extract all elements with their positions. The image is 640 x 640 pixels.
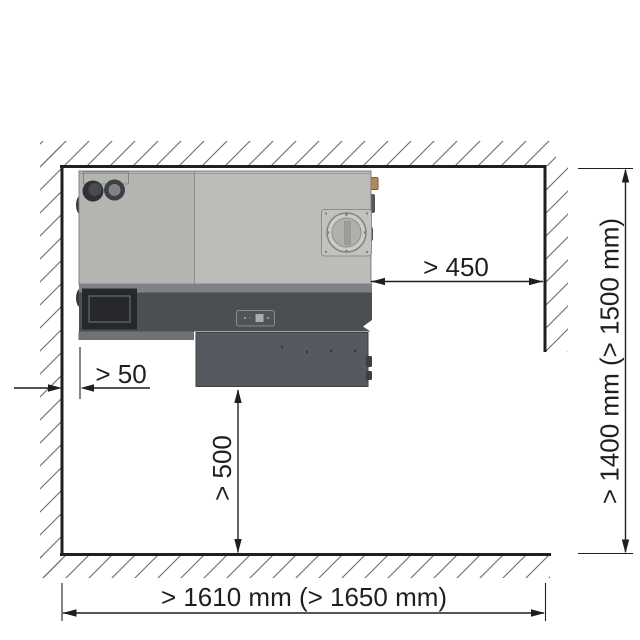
wall-hatch-left: [40, 146, 62, 578]
room-width-label: > 1610 mm (> 1650 mm): [161, 582, 447, 612]
dimension-room-depth: > 1400 mm (> 1500 mm): [578, 169, 633, 554]
unit-display-panel: [82, 289, 137, 330]
unit-lower-box: [196, 333, 368, 387]
dimension-room-width: > 1610 mm (> 1650 mm): [62, 582, 546, 621]
right-clearance-label: > 450: [423, 252, 489, 282]
diagram-canvas: > 450 > 50 > 500 > 1400 mm (> 1500 mm) >…: [0, 0, 640, 640]
wall-hatch-right: [546, 167, 568, 352]
unit-lip: [79, 332, 195, 341]
dimension-right-clearance: > 450: [371, 252, 543, 285]
dimension-left-clearance: > 50: [14, 347, 150, 399]
ventilation-unit: [76, 171, 378, 387]
box-tab-1: [366, 356, 372, 367]
front-clearance-label: > 500: [207, 435, 237, 501]
box-tab-2: [366, 371, 372, 380]
left-clearance-label: > 50: [95, 359, 146, 389]
wall-hatch-top: [40, 141, 556, 166]
duct-port-left-1-inner: [89, 183, 102, 196]
room-depth-label: > 1400 mm (> 1500 mm): [595, 218, 625, 504]
duct-port-left-2-inner: [109, 184, 121, 196]
dimension-front-clearance: > 500: [207, 389, 242, 553]
wall-hatch-bottom: [40, 556, 550, 578]
clearance-diagram: > 450 > 50 > 500 > 1400 mm (> 1500 mm) >…: [0, 0, 640, 640]
service-port-latch: [345, 222, 351, 245]
unit-control-panel: [237, 311, 275, 327]
